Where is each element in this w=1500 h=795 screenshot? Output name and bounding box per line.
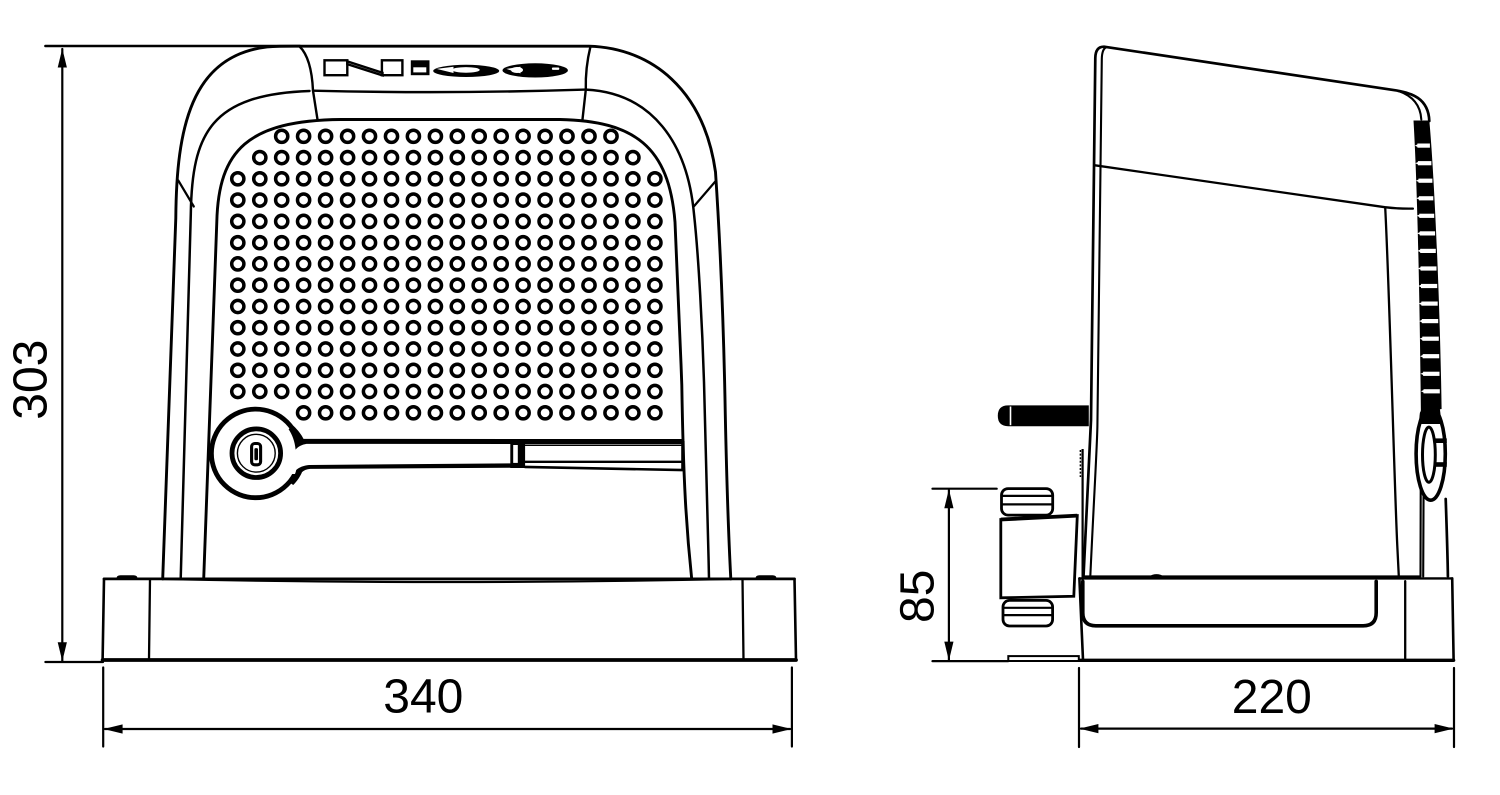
svg-text:340: 340 [383,671,463,724]
svg-text:220: 220 [1232,671,1312,724]
svg-text:303: 303 [5,340,58,420]
svg-text:85: 85 [892,570,945,623]
